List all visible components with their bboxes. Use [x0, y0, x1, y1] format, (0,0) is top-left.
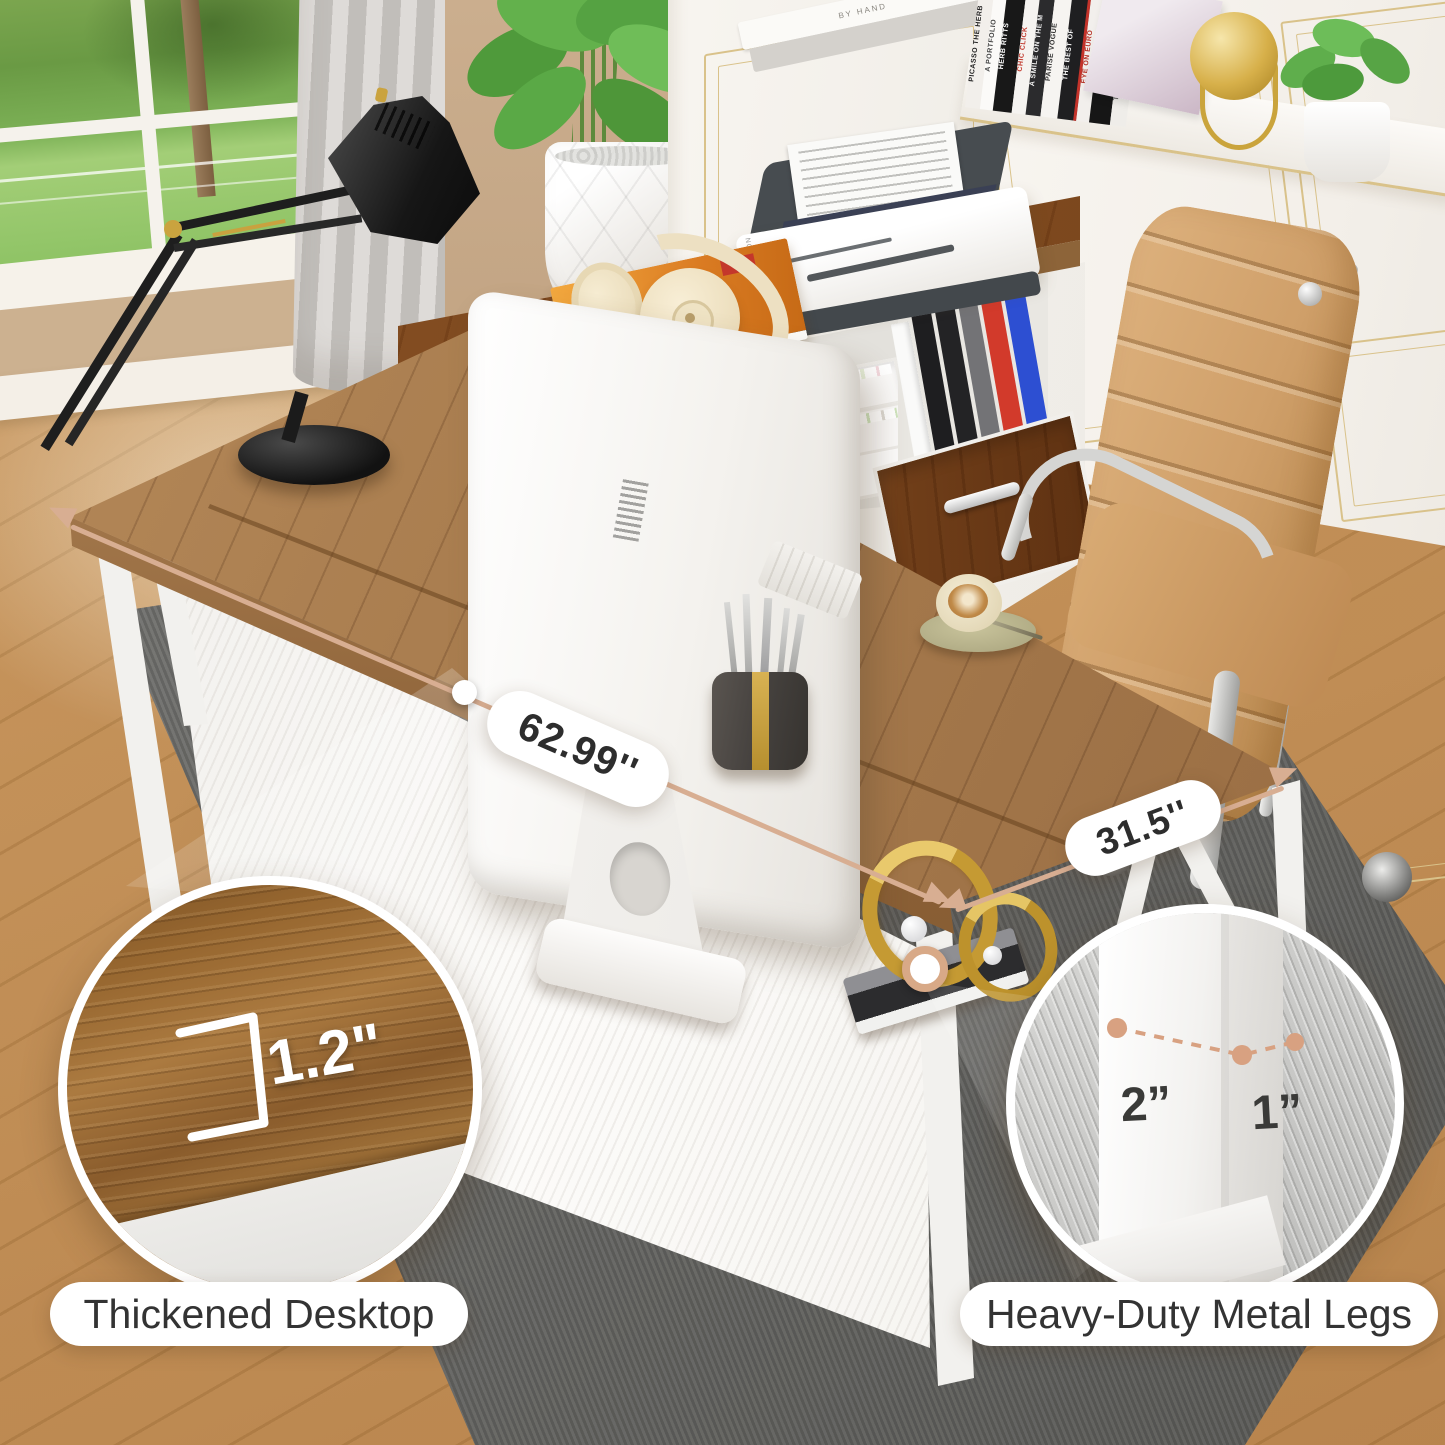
pen-holder-body	[712, 672, 808, 770]
sculpture-pearl	[901, 916, 927, 942]
leg-measure-dashes	[1015, 913, 1395, 1293]
inset-thickness-closeup: 1.2"	[58, 876, 482, 1300]
cup	[936, 574, 1002, 632]
callout-thickened-desktop: Thickened Desktop	[50, 1282, 468, 1346]
flat-book-title: BY HAND	[838, 1, 888, 20]
chair-frame-cap	[1298, 282, 1322, 306]
sculpture-pearl-small	[983, 946, 1002, 965]
gold-sphere	[1190, 12, 1278, 100]
small-plant	[1272, 16, 1412, 186]
gold-sphere-decor	[1186, 12, 1282, 142]
small-plant-pot	[1304, 102, 1390, 182]
latte-art	[948, 584, 988, 618]
chair-caster	[1362, 852, 1412, 902]
callout-heavy-duty-legs: Heavy-Duty Metal Legs	[960, 1282, 1438, 1346]
callout-heavy-duty-legs-label: Heavy-Duty Metal Legs	[986, 1291, 1412, 1338]
thickness-bracket-icon	[67, 885, 473, 1291]
leg-front-width-value: 2”	[1100, 1075, 1193, 1135]
lamp-elbow-joint	[164, 220, 182, 238]
lamp-base	[238, 425, 390, 485]
leg-side-width-value: 1”	[1236, 1083, 1319, 1142]
measure-ring	[902, 946, 948, 992]
inset-leg-closeup: 2” 1”	[1006, 904, 1404, 1302]
pen-holder-gold-band	[752, 672, 769, 770]
callout-thickened-desktop-label: Thickened Desktop	[84, 1291, 435, 1338]
headphone-logo	[685, 313, 695, 323]
pen-holder	[712, 648, 808, 770]
lamp-finial	[375, 87, 389, 103]
coffee-cup	[920, 568, 1050, 658]
measure-dot	[452, 680, 477, 705]
product-scene: BY HAND PICASSO THE HERB A PORTFOLIO HER…	[0, 0, 1445, 1445]
